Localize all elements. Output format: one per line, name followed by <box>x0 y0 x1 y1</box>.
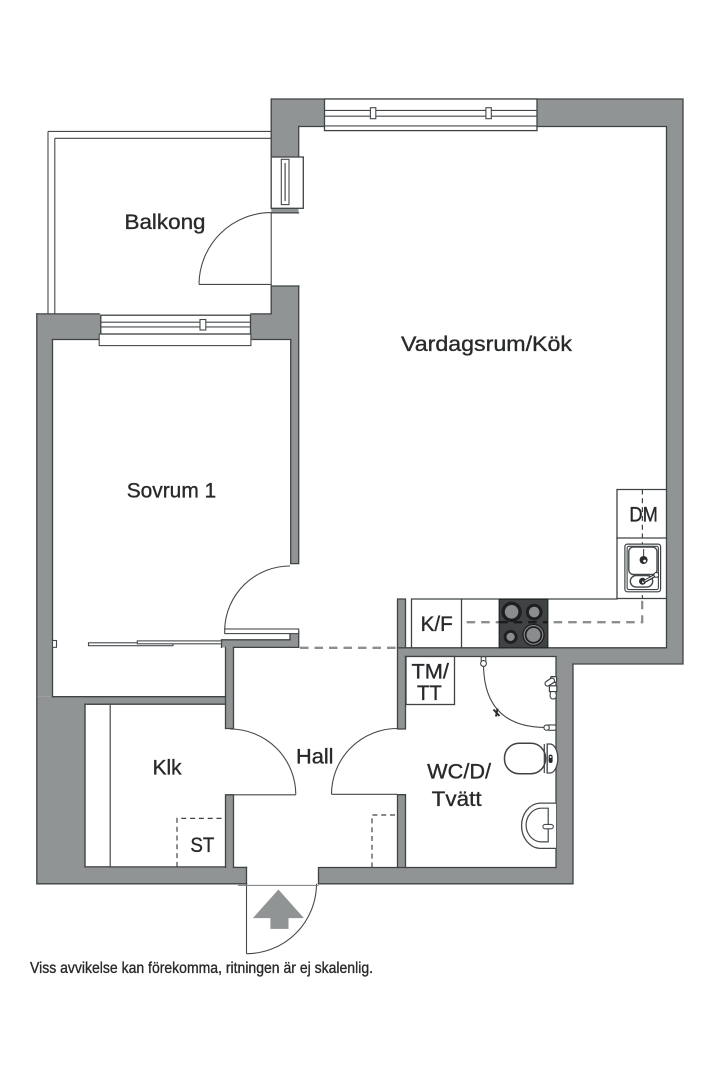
svg-text:Vardagsrum/Kök: Vardagsrum/Kök <box>401 332 572 356</box>
svg-text:ST: ST <box>190 833 214 857</box>
svg-text:Hall: Hall <box>296 744 334 768</box>
svg-text:Klk: Klk <box>153 756 182 780</box>
svg-text:TM/: TM/ <box>412 660 450 684</box>
svg-text:Balkong: Balkong <box>125 210 206 234</box>
svg-text:Tvätt: Tvätt <box>432 787 482 811</box>
svg-text:WC/D/: WC/D/ <box>427 759 491 783</box>
svg-text:K/F: K/F <box>421 612 453 636</box>
svg-text:DM: DM <box>629 503 657 527</box>
svg-text:TT: TT <box>417 681 442 705</box>
svg-text:Viss avvikelse kan förekomma,: Viss avvikelse kan förekomma, ritningen … <box>30 960 373 977</box>
svg-text:Sovrum 1: Sovrum 1 <box>127 478 217 502</box>
